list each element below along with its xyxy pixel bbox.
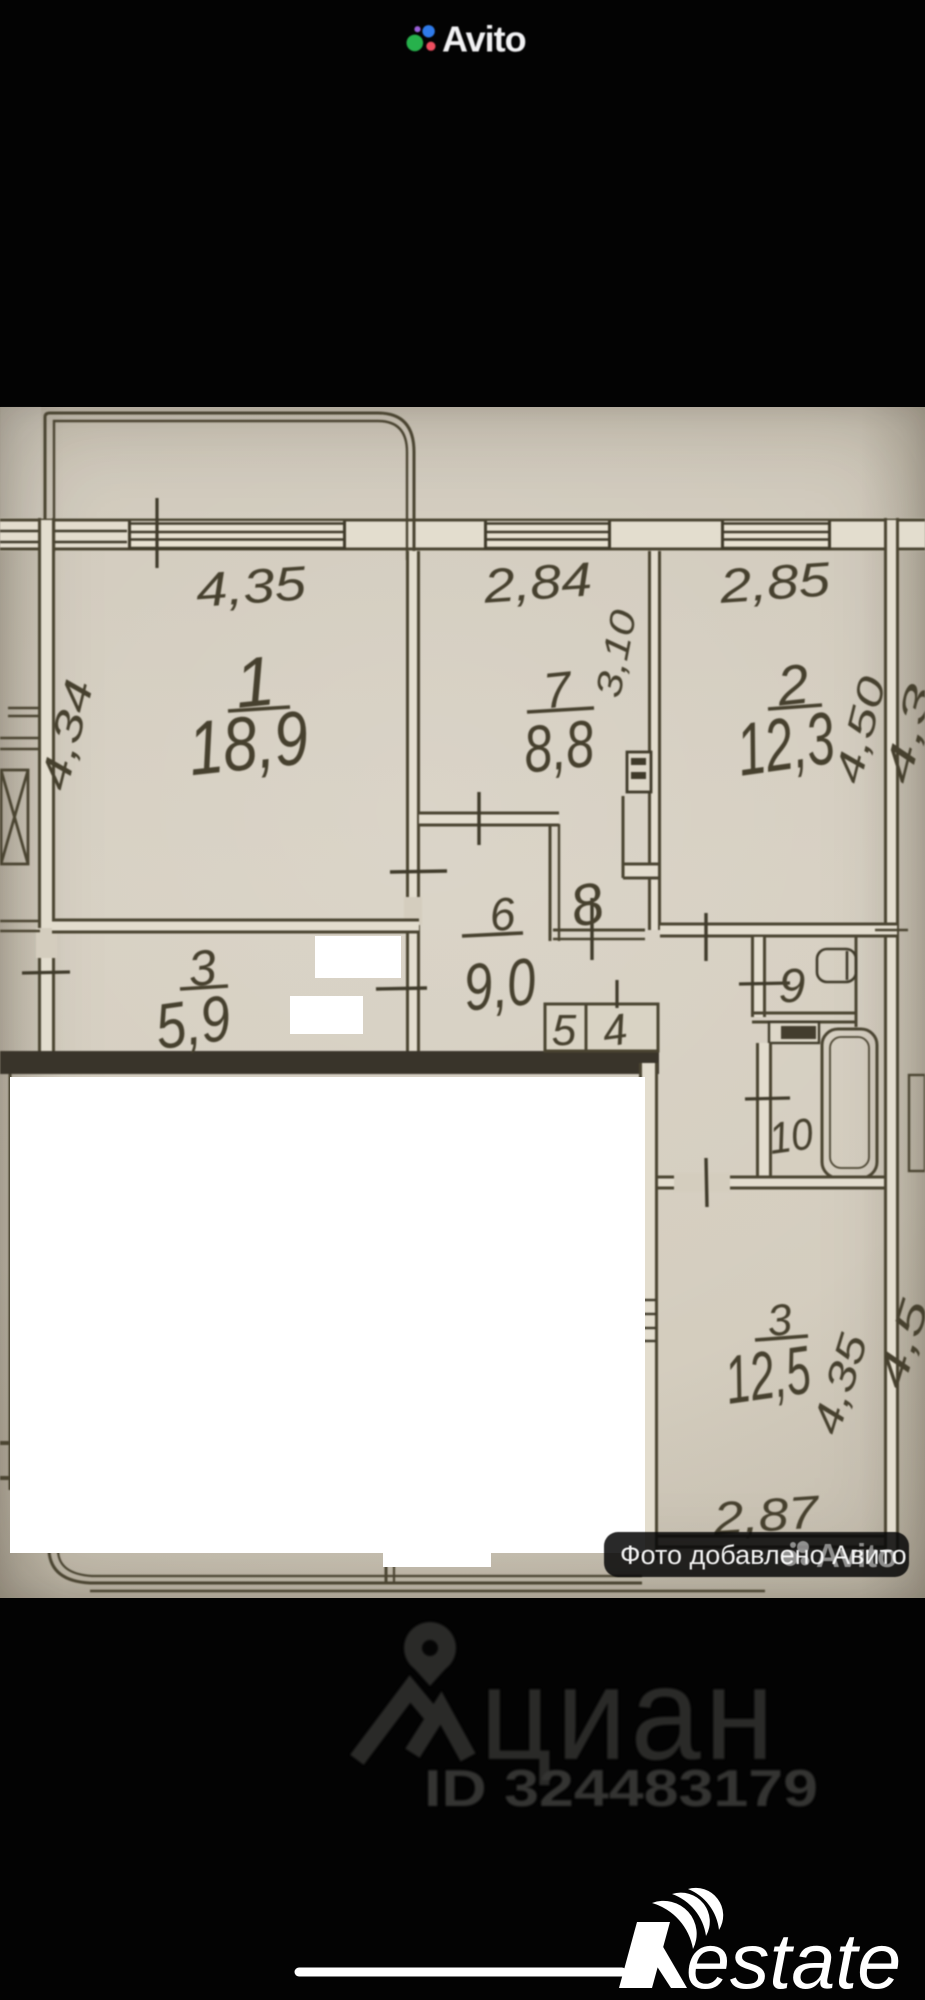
svg-text:2,84: 2,84	[481, 553, 594, 613]
svg-text:Avito: Avito	[442, 19, 526, 60]
svg-text:Avito: Avito	[816, 1537, 897, 1574]
svg-text:3,10: 3,10	[587, 607, 644, 701]
svg-text:12,3: 12,3	[732, 696, 840, 792]
svg-text:estate: estate	[686, 1916, 901, 2000]
svg-text:8,8: 8,8	[520, 706, 598, 787]
svg-text:5: 5	[552, 1006, 577, 1055]
svg-text:18,9: 18,9	[184, 695, 312, 792]
svg-text:9: 9	[779, 960, 806, 1013]
svg-text:4,35: 4,35	[805, 1328, 877, 1439]
svg-text:10: 10	[766, 1109, 817, 1164]
svg-text:4,5: 4,5	[869, 1294, 925, 1394]
svg-text:2,85: 2,85	[717, 553, 832, 614]
svg-text:ID 324483179: ID 324483179	[424, 1760, 818, 1818]
svg-text:9,0: 9,0	[460, 944, 540, 1025]
svg-text:12,5: 12,5	[720, 1332, 815, 1419]
svg-text:5,9: 5,9	[151, 981, 235, 1063]
svg-text:4,35: 4,35	[194, 557, 308, 618]
